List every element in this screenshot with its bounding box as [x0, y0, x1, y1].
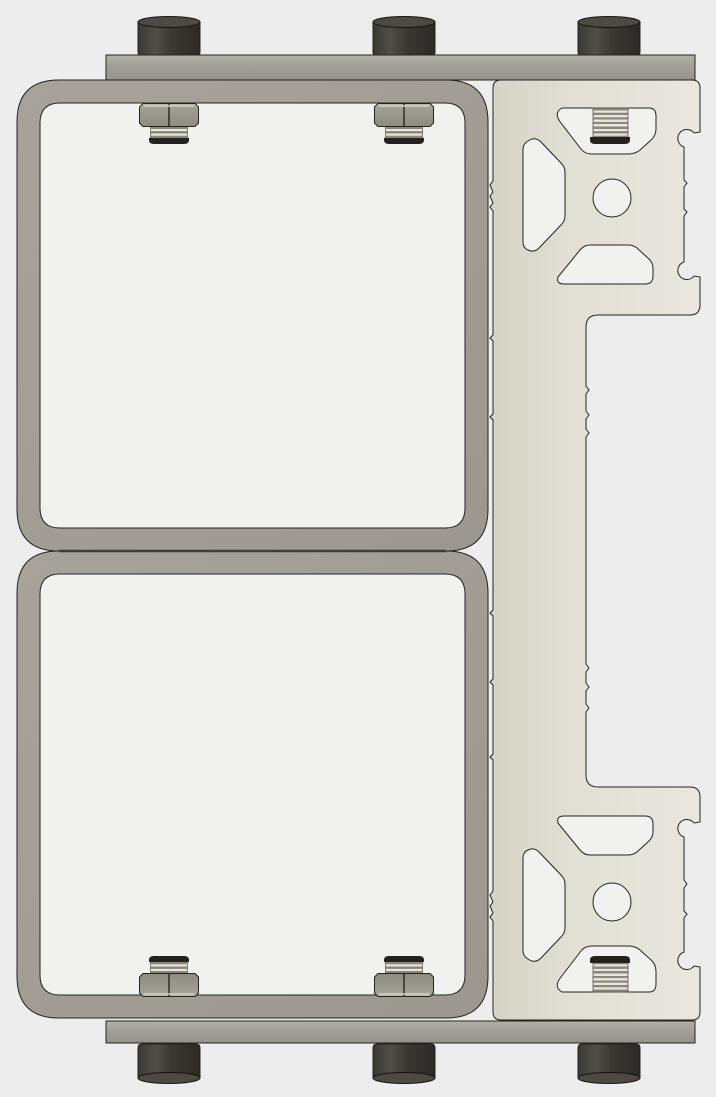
bottom-mounting-rail [106, 1021, 695, 1043]
lower-frame-interior [40, 574, 465, 995]
cad-render [0, 0, 716, 1097]
upper-frame-interior [40, 103, 465, 528]
cap-bolt-head [373, 17, 435, 57]
hex-nut [375, 104, 434, 127]
extrusion-center-hole [593, 179, 631, 217]
hex-nut [140, 104, 199, 127]
cap-bolt-head [578, 17, 640, 57]
cad-viewport [0, 0, 716, 1097]
extrusion-stud-threads [593, 108, 628, 139]
threaded-stud [149, 126, 189, 144]
cap-bolt-head [138, 17, 200, 57]
extrusion-stud-base [590, 137, 630, 144]
threaded-stud [384, 126, 424, 144]
top-mounting-rail [106, 55, 695, 80]
